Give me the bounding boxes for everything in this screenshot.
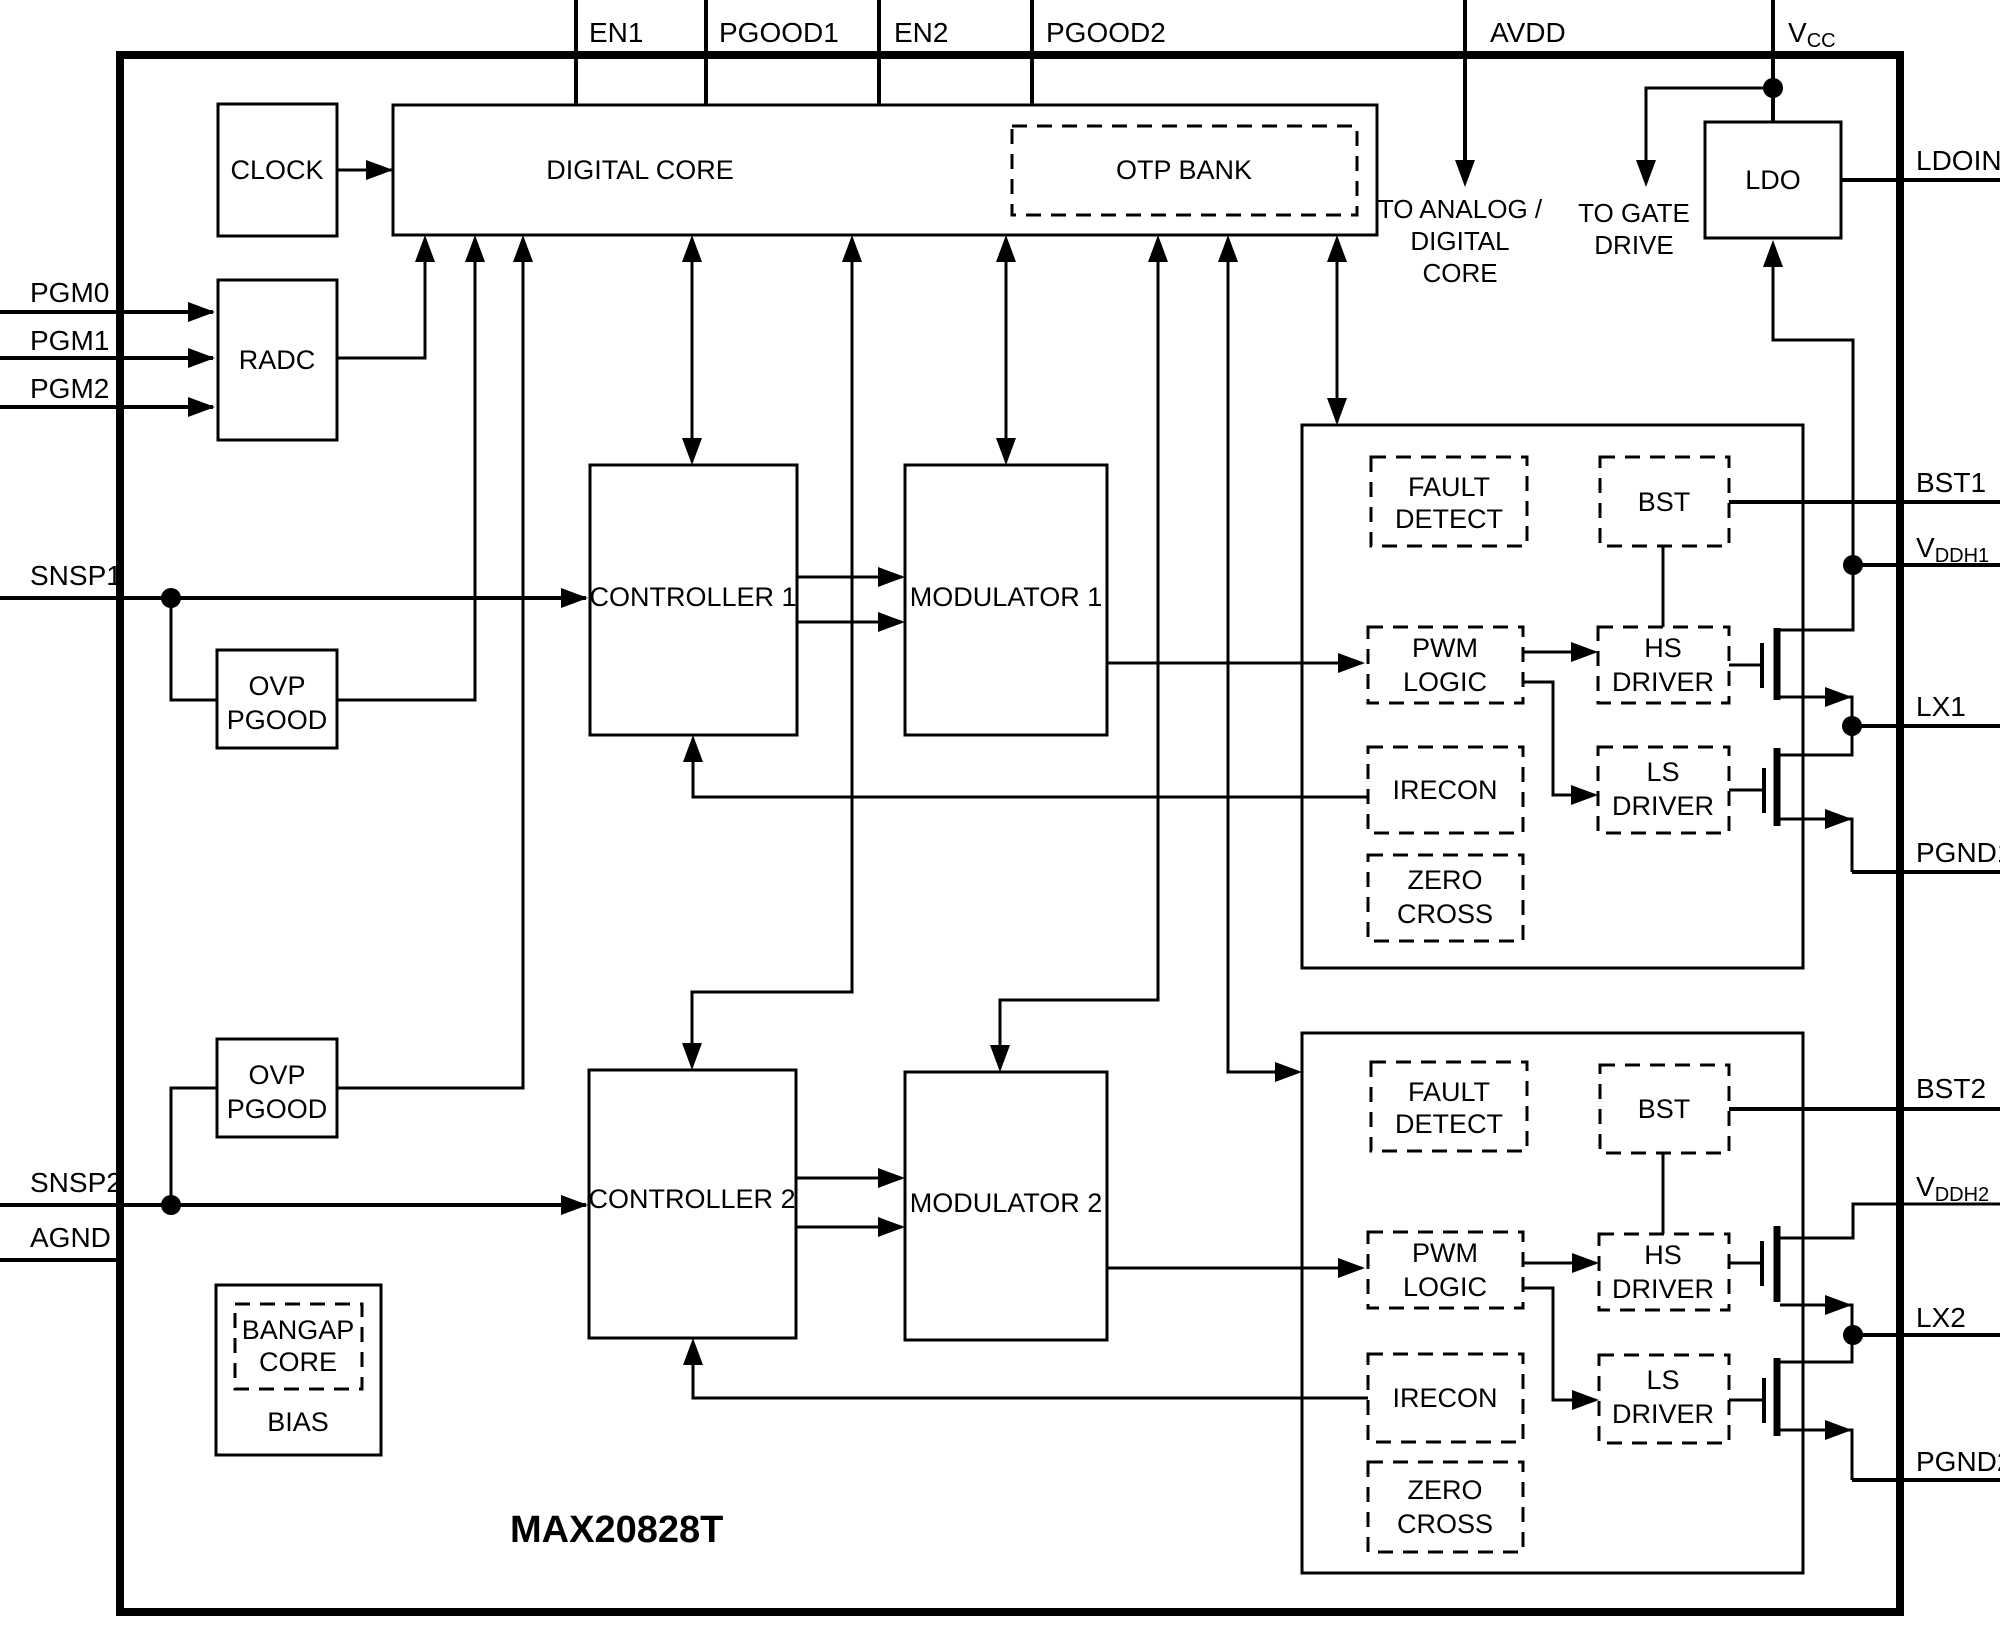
wire-core-controller2 bbox=[692, 240, 852, 1067]
arrowhead-icon bbox=[366, 160, 393, 180]
block-clock: CLOCK bbox=[218, 104, 337, 236]
wire-snsp1-to-ovp1 bbox=[171, 598, 217, 700]
to-gate-drive-line2: DRIVE bbox=[1594, 230, 1673, 260]
arrowhead-icon bbox=[561, 588, 588, 608]
ldo-label: LDO bbox=[1745, 165, 1801, 195]
ls2-drain-lead bbox=[1780, 1337, 1852, 1362]
pin-label-ldoin: LDOIN bbox=[1916, 145, 2000, 176]
functional-block-diagram: CLOCK DIGITAL CORE OTP BANK RADC OVP PGO… bbox=[0, 0, 2000, 1626]
hs2-source-lead bbox=[1780, 1305, 1852, 1335]
arrowhead-icon bbox=[878, 1217, 905, 1237]
junction-dot bbox=[161, 588, 181, 608]
arrowhead-icon bbox=[990, 1045, 1010, 1072]
zero-cross-1-line2: CROSS bbox=[1397, 899, 1493, 929]
pin-label-vddh1-main: V bbox=[1916, 532, 1935, 563]
pwm-logic-2-line2: LOGIC bbox=[1403, 1272, 1487, 1302]
pin-label-snsp1: SNSP1 bbox=[30, 560, 122, 591]
hs-driver-2-line1: HS bbox=[1644, 1240, 1682, 1270]
arrowhead-icon bbox=[513, 235, 533, 262]
arrowhead-icon bbox=[683, 1338, 703, 1365]
arrowhead-icon bbox=[1455, 160, 1475, 187]
arrowhead-icon bbox=[842, 235, 862, 262]
ls2-source-lead bbox=[1780, 1430, 1852, 1480]
pin-label-snsp2: SNSP2 bbox=[30, 1167, 122, 1198]
arrowhead-icon bbox=[1218, 235, 1238, 262]
pin-label-pgnd1: PGND1 bbox=[1916, 837, 2000, 868]
bst-2-label: BST bbox=[1638, 1094, 1691, 1124]
junction-dot bbox=[1843, 1325, 1863, 1345]
controller-1-label: CONTROLLER 1 bbox=[589, 582, 796, 612]
arrowhead-icon bbox=[1825, 1420, 1852, 1440]
wire-irecon1-controller1 bbox=[693, 740, 1368, 797]
pin-label-lx2: LX2 bbox=[1916, 1302, 1966, 1333]
pin-label-vddh1-sub: DDH1 bbox=[1935, 545, 1989, 567]
zero-cross-2-line1: ZERO bbox=[1407, 1475, 1482, 1505]
part-number: MAX20828T bbox=[510, 1509, 723, 1551]
pin-label-vddh1: VDDH1 bbox=[1916, 532, 1989, 567]
fault-detect-1-line1: FAULT bbox=[1408, 472, 1490, 502]
wire-pwm1-ls-driver1 bbox=[1523, 682, 1595, 795]
pwm-logic-1-line1: PWM bbox=[1412, 633, 1478, 663]
pin-label-vcc-main: V bbox=[1788, 17, 1807, 48]
hs2-drain-lead-vddh2 bbox=[1780, 1204, 2000, 1238]
arrowhead-icon bbox=[415, 235, 435, 262]
wire-core-driver-section2 bbox=[1228, 240, 1299, 1072]
ls-driver-1-line1: LS bbox=[1646, 757, 1679, 787]
bandgap-core-line1: BANGAP bbox=[242, 1315, 355, 1345]
pin-label-vcc: VCC bbox=[1788, 17, 1836, 52]
otp-bank-label: OTP BANK bbox=[1116, 155, 1252, 185]
pin-label-pgm1: PGM1 bbox=[30, 325, 109, 356]
junction-dot bbox=[1763, 78, 1783, 98]
block-radc: RADC bbox=[218, 280, 337, 440]
pin-label-en2: EN2 bbox=[894, 17, 948, 48]
wire-vcc-to-gate-drive bbox=[1646, 88, 1773, 164]
hs-driver-2-line2: DRIVER bbox=[1612, 1274, 1714, 1304]
wire-radc-to-core bbox=[337, 240, 425, 358]
pwm-logic-2-line1: PWM bbox=[1412, 1238, 1478, 1268]
arrowhead-icon bbox=[878, 567, 905, 587]
bias-label: BIAS bbox=[267, 1407, 329, 1437]
arrowhead-icon bbox=[1327, 398, 1347, 425]
pin-label-pgnd2: PGND2 bbox=[1916, 1446, 2000, 1477]
ovp-pgood-1-line2: PGOOD bbox=[227, 705, 328, 735]
hs1-source-lead bbox=[1780, 697, 1852, 726]
arrowhead-icon bbox=[1825, 687, 1852, 707]
diagram-canvas: CLOCK DIGITAL CORE OTP BANK RADC OVP PGO… bbox=[0, 0, 2000, 1626]
arrowhead-icon bbox=[878, 1168, 905, 1188]
arrowhead-icon bbox=[188, 397, 215, 417]
pin-label-pgood1: PGOOD1 bbox=[719, 17, 839, 48]
pin-label-vddh2: VDDH2 bbox=[1916, 1171, 1989, 1206]
ls-driver-2-line2: DRIVER bbox=[1612, 1399, 1714, 1429]
arrowhead-icon bbox=[1148, 235, 1168, 262]
block-ovp-pgood-1: OVP PGOOD bbox=[217, 650, 337, 748]
zero-cross-1-line1: ZERO bbox=[1407, 865, 1482, 895]
wire-vddh1-to-ldo bbox=[1773, 245, 1853, 565]
pin-label-vddh2-sub: DDH2 bbox=[1935, 1184, 1989, 1206]
ovp-pgood-2-line2: PGOOD bbox=[227, 1094, 328, 1124]
clock-label: CLOCK bbox=[230, 155, 323, 185]
ls-driver-1-line2: DRIVER bbox=[1612, 791, 1714, 821]
ovp-pgood-2-line1: OVP bbox=[248, 1060, 305, 1090]
arrowhead-icon bbox=[682, 235, 702, 262]
arrowhead-icon bbox=[1636, 160, 1656, 187]
block-controller-2: CONTROLLER 2 bbox=[588, 1070, 796, 1338]
arrowhead-icon bbox=[1825, 1295, 1852, 1315]
bandgap-core-line2: CORE bbox=[259, 1347, 337, 1377]
block-bandgap-bias: BANGAP CORE BIAS bbox=[216, 1285, 381, 1455]
arrowhead-icon bbox=[188, 302, 215, 322]
junction-dot bbox=[1843, 555, 1863, 575]
pin-label-pgm2: PGM2 bbox=[30, 373, 109, 404]
pin-label-agnd: AGND bbox=[30, 1222, 111, 1253]
arrowhead-icon bbox=[1572, 1390, 1599, 1410]
ls-driver-2-line1: LS bbox=[1646, 1365, 1679, 1395]
arrowhead-icon bbox=[682, 438, 702, 465]
hs-driver-1-line2: DRIVER bbox=[1612, 667, 1714, 697]
ls1-drain-lead bbox=[1780, 728, 1852, 755]
arrowhead-icon bbox=[1571, 642, 1598, 662]
irecon-2-label: IRECON bbox=[1392, 1383, 1497, 1413]
hs-driver-1-line1: HS bbox=[1644, 633, 1682, 663]
modulator-2-label: MODULATOR 2 bbox=[910, 1188, 1103, 1218]
arrowhead-icon bbox=[188, 348, 215, 368]
ovp-pgood-1-line1: OVP bbox=[248, 671, 305, 701]
annotations: TO ANALOG / DIGITAL CORE TO GATE DRIVE M… bbox=[510, 194, 1690, 1551]
block-ovp-pgood-2: OVP PGOOD bbox=[217, 1039, 337, 1137]
junction-dots bbox=[161, 78, 1863, 1345]
arrowhead-icon bbox=[682, 1043, 702, 1070]
fault-detect-1-line2: DETECT bbox=[1395, 504, 1503, 534]
arrowhead-icon bbox=[996, 235, 1016, 262]
block-ldo: LDO bbox=[1705, 122, 1841, 238]
fault-detect-2-line2: DETECT bbox=[1395, 1109, 1503, 1139]
ls-mosfet-1 bbox=[1729, 728, 1852, 872]
arrowhead-icon bbox=[683, 735, 703, 762]
arrowhead-icon bbox=[1572, 1253, 1599, 1273]
wire-pwm2-ls-driver2 bbox=[1523, 1288, 1596, 1400]
arrowhead-icon bbox=[1571, 785, 1598, 805]
arrowhead-icon bbox=[465, 235, 485, 262]
arrowhead-icon bbox=[1327, 235, 1347, 262]
arrowhead-icon bbox=[1763, 240, 1783, 267]
digital-core-label: DIGITAL CORE bbox=[546, 155, 734, 185]
arrowhead-icon bbox=[1338, 653, 1365, 673]
to-analog-digital-core-line1: TO ANALOG / bbox=[1378, 194, 1543, 224]
pin-label-avdd: AVDD bbox=[1490, 17, 1566, 48]
to-analog-digital-core-line3: CORE bbox=[1422, 258, 1497, 288]
pin-label-en1: EN1 bbox=[589, 17, 643, 48]
arrowhead-icon bbox=[561, 1195, 588, 1215]
arrowhead-icon bbox=[1338, 1258, 1365, 1278]
modulator-1-label: MODULATOR 1 bbox=[910, 582, 1103, 612]
pin-label-vddh2-main: V bbox=[1916, 1171, 1935, 1202]
radc-label: RADC bbox=[239, 345, 316, 375]
pin-label-pgm0: PGM0 bbox=[30, 277, 109, 308]
pin-label-pgood2: PGOOD2 bbox=[1046, 17, 1166, 48]
hs1-drain-lead bbox=[1780, 568, 1853, 630]
pin-label-vcc-sub: CC bbox=[1807, 30, 1836, 52]
ls-mosfet-2 bbox=[1729, 1337, 1852, 1480]
block-modulator-2: MODULATOR 2 bbox=[905, 1072, 1107, 1340]
block-controller-1: CONTROLLER 1 bbox=[589, 465, 797, 735]
wire-snsp2-to-ovp2 bbox=[171, 1088, 217, 1205]
pin-label-lx1: LX1 bbox=[1916, 691, 1966, 722]
junction-dot bbox=[1842, 716, 1862, 736]
wire-ovp2-to-core bbox=[337, 240, 523, 1088]
wire-irecon2-controller2 bbox=[693, 1343, 1368, 1398]
arrowhead-icon bbox=[1825, 809, 1852, 829]
wire-ovp1-to-core bbox=[337, 240, 475, 700]
arrowhead-icon bbox=[878, 612, 905, 632]
to-gate-drive-line1: TO GATE bbox=[1578, 198, 1690, 228]
pin-label-bst2: BST2 bbox=[1916, 1073, 1986, 1104]
irecon-1-label: IRECON bbox=[1392, 775, 1497, 805]
pin-lines bbox=[0, 0, 2000, 1480]
controller-2-label: CONTROLLER 2 bbox=[588, 1184, 795, 1214]
pwm-logic-1-line2: LOGIC bbox=[1403, 667, 1487, 697]
arrowhead-icon bbox=[1275, 1062, 1302, 1082]
block-modulator-1: MODULATOR 1 bbox=[905, 465, 1107, 735]
block-digital-core: DIGITAL CORE OTP BANK bbox=[393, 105, 1377, 235]
bst-1-label: BST bbox=[1638, 487, 1691, 517]
ls1-source-lead bbox=[1780, 819, 1852, 872]
pin-label-bst1: BST1 bbox=[1916, 467, 1986, 498]
fault-detect-2-line1: FAULT bbox=[1408, 1077, 1490, 1107]
arrowheads bbox=[188, 160, 1852, 1440]
zero-cross-2-line2: CROSS bbox=[1397, 1509, 1493, 1539]
junction-dot bbox=[161, 1195, 181, 1215]
to-analog-digital-core-line2: DIGITAL bbox=[1410, 226, 1509, 256]
wire-core-modulator2 bbox=[1000, 240, 1158, 1069]
arrowhead-icon bbox=[996, 438, 1016, 465]
